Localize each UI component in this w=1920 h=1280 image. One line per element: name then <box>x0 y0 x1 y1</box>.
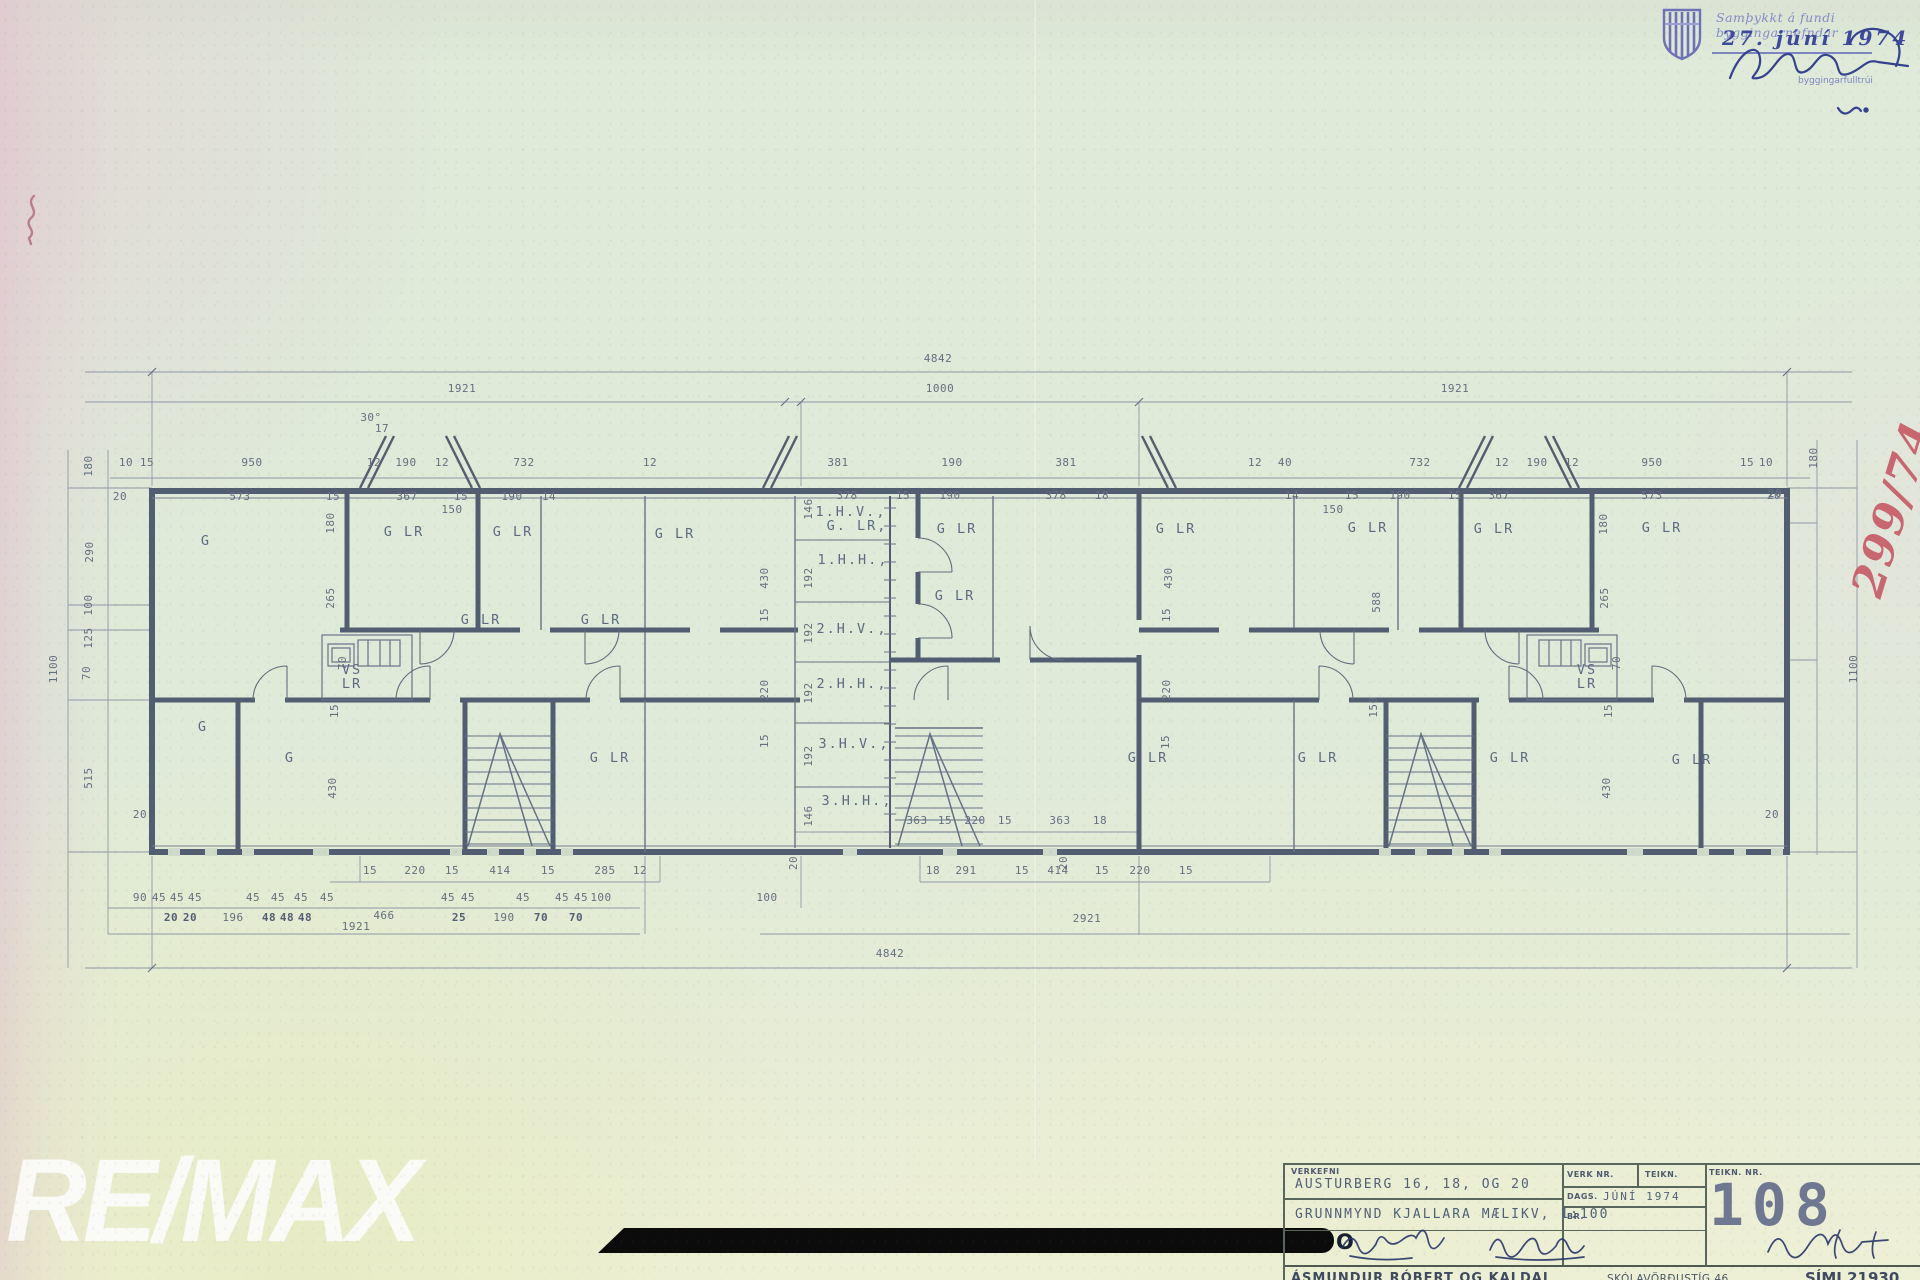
laundry-closets <box>322 635 1617 700</box>
teikn-label: TEIKN. <box>1645 1170 1678 1179</box>
dim-label: 381 <box>1055 456 1076 469</box>
dim-label: 40 <box>1278 456 1292 469</box>
dim-label: 20 <box>164 911 178 924</box>
room-label: G LR <box>1474 521 1515 537</box>
room-label: G LR <box>581 612 622 628</box>
dim-label: 70 <box>80 666 93 680</box>
dim-label: 573 <box>229 490 250 503</box>
dim-label: 10 <box>1759 456 1773 469</box>
dim-label: 190 <box>395 456 416 469</box>
dim-label: 363 <box>906 814 927 827</box>
room-label: G LR <box>937 521 978 537</box>
dim-label: 146 <box>802 498 815 519</box>
flue-marks <box>360 436 1579 488</box>
dim-label: 1921 <box>448 382 477 395</box>
verkefni-label: VERKEFNI <box>1291 1167 1340 1176</box>
dim-label: 15 <box>326 490 340 503</box>
dim-label: 15 <box>363 864 377 877</box>
dim-label: 70 <box>534 911 548 924</box>
dim-label: 367 <box>1488 489 1509 502</box>
dim-label: 192 <box>802 622 815 643</box>
dim-label: 180 <box>324 512 337 533</box>
room-label: G LR <box>384 524 425 540</box>
dim-label: 45 <box>294 891 308 904</box>
dim-label: 15 <box>758 734 771 748</box>
dim-label: 10 <box>119 456 133 469</box>
room-label: G LR <box>935 588 976 604</box>
dim-label: 45 <box>461 891 475 904</box>
dim-label: 100 <box>82 594 95 615</box>
dim-label: 265 <box>1598 587 1611 608</box>
dim-label: 15 <box>328 704 341 718</box>
dim-label: 430 <box>1162 567 1175 588</box>
dim-label: 15 <box>1345 489 1359 502</box>
dim-label: 220 <box>1129 864 1150 877</box>
dim-label: 1100 <box>47 655 60 684</box>
dim-label: 588 <box>1370 591 1383 612</box>
dim-label: 90 <box>133 891 147 904</box>
dim-label: 291 <box>955 864 976 877</box>
dim-label: 190 <box>493 911 514 924</box>
dim-label: 20 <box>183 911 197 924</box>
dimension-texts: 4842192110001921101595012190127321238119… <box>47 352 1860 960</box>
dim-label: 20 <box>133 808 147 821</box>
dim-label: 45 <box>320 891 334 904</box>
dim-label: 1921 <box>342 920 371 933</box>
stair-left <box>465 734 553 846</box>
dim-label: 192 <box>802 567 815 588</box>
dim-label: 180 <box>1597 513 1610 534</box>
stamp-official-title: byggingarfulltrúi <box>1798 76 1873 86</box>
dim-label: 414 <box>489 864 510 877</box>
room-label: 2.H.H., <box>817 676 888 692</box>
dim-label: 45 <box>441 891 455 904</box>
dim-label: 378 <box>836 489 857 502</box>
dim-label: 1921 <box>1441 382 1470 395</box>
dim-label: 220 <box>1160 679 1173 700</box>
dim-label: 12 <box>1495 456 1509 469</box>
dim-label: 150 <box>441 503 462 516</box>
dim-label: 732 <box>513 456 534 469</box>
dim-label: 2921 <box>1073 912 1102 925</box>
dim-label: 45 <box>555 891 569 904</box>
dim-label: 45 <box>188 891 202 904</box>
dim-label: 15 <box>1095 864 1109 877</box>
dim-label: 190 <box>501 490 522 503</box>
dim-label: 48 <box>262 911 276 924</box>
dim-label: 15 <box>1179 864 1193 877</box>
verk-nr-label: VERK NR. <box>1567 1170 1614 1179</box>
handwritten-signatures <box>1280 1222 1920 1266</box>
dim-label: 573 <box>1641 489 1662 502</box>
room-label: 2.H.V., <box>817 621 888 637</box>
room-label: 3.H.H., <box>822 793 893 809</box>
dim-label: 1100 <box>1847 655 1860 684</box>
dim-label: 70 <box>569 911 583 924</box>
dim-label: 45 <box>246 891 260 904</box>
approval-stamp: Samþykkt á fundi byggingarnefndar 27. jú… <box>1640 2 1920 142</box>
room-label: G <box>285 750 295 766</box>
dim-label: 15 <box>1159 735 1172 749</box>
dim-label: 220 <box>404 864 425 877</box>
dim-label: 290 <box>83 541 96 562</box>
room-label: G LR <box>1642 520 1683 536</box>
dim-label: 48 <box>280 911 294 924</box>
dim-label: 100 <box>756 891 777 904</box>
dim-label: 45 <box>152 891 166 904</box>
dim-label: 367 <box>396 490 417 503</box>
dim-label: 12 <box>367 456 381 469</box>
room-label: G LR <box>1348 520 1389 536</box>
dim-label: 265 <box>324 587 337 608</box>
dim-label: 100 <box>590 891 611 904</box>
title-block-rule <box>1285 1198 1562 1200</box>
dim-label: 15 <box>1015 864 1029 877</box>
dags-value: JÚNÍ 1974 <box>1603 1190 1681 1203</box>
dim-label: 190 <box>1389 489 1410 502</box>
firm-row: ÁSMUNDUR RÓBERT OG KALDAL SKÓLAVÖRÐUSTÍG… <box>1285 1265 1920 1280</box>
dim-label: 146 <box>802 805 815 826</box>
room-label: LR <box>342 676 362 692</box>
dim-label: 363 <box>1049 814 1070 827</box>
dim-label: 15 <box>445 864 459 877</box>
dim-label: 12 <box>1565 456 1579 469</box>
dim-label: 15 <box>896 489 910 502</box>
room-label: G LR <box>493 524 534 540</box>
stair-center <box>895 734 983 846</box>
dim-label: 190 <box>941 456 962 469</box>
dim-label: 732 <box>1409 456 1430 469</box>
dim-label: 18 <box>1093 814 1107 827</box>
dim-label: 220 <box>964 814 985 827</box>
room-label: G LR <box>1298 750 1339 766</box>
firm-address: SKÓLAVÖRÐUSTÍG 46 <box>1607 1273 1729 1280</box>
dim-label: 20 <box>113 490 127 503</box>
dim-label: 4842 <box>876 947 905 960</box>
dim-label: 950 <box>241 456 262 469</box>
br-label: BR. <box>1567 1212 1584 1221</box>
dim-label: 18 <box>926 864 940 877</box>
dim-label: 192 <box>802 745 815 766</box>
dim-label: 15 <box>758 608 771 622</box>
dim-label: 430 <box>758 567 771 588</box>
dim-label: 12 <box>1248 456 1262 469</box>
dim-label: 15 <box>1740 456 1754 469</box>
dim-label: 45 <box>516 891 530 904</box>
dags-label: DAGS. <box>1567 1192 1598 1201</box>
dim-label: 12 <box>435 456 449 469</box>
room-label: G LR <box>655 526 696 542</box>
dim-label: 414 <box>1047 864 1068 877</box>
dim-label: 14 <box>542 490 556 503</box>
dim-label: 180 <box>1807 447 1820 468</box>
room-label: G LR <box>1490 750 1531 766</box>
room-label: G LR <box>590 750 631 766</box>
room-label: G LR <box>1672 752 1713 768</box>
dim-label: 285 <box>594 864 615 877</box>
dim-label: 15 <box>541 864 555 877</box>
room-label: G LR <box>461 612 502 628</box>
dim-label: 515 <box>82 767 95 788</box>
dim-label: 430 <box>1600 777 1613 798</box>
title-block-rule <box>1562 1186 1705 1188</box>
dim-label: 381 <box>827 456 848 469</box>
firm-phone: SÍMI 21930 <box>1805 1269 1899 1280</box>
room-label: G LR <box>1156 521 1197 537</box>
remax-watermark: RE/MAX <box>6 1133 418 1268</box>
dim-label: 220 <box>758 679 771 700</box>
room-label: G <box>198 719 208 735</box>
dim-label: 20 <box>787 856 800 870</box>
dim-label: 150 <box>1367 696 1380 717</box>
reykjavik-coat-of-arms-icon <box>1662 8 1702 62</box>
dim-label: 125 <box>82 627 95 648</box>
dim-label: 15 <box>1160 608 1173 622</box>
dim-label: 15 <box>140 456 154 469</box>
stamp-signature <box>1700 16 1920 126</box>
dim-label: 48 <box>298 911 312 924</box>
scanned-blueprint-sheet: 4842192110001921101595012190127321238119… <box>0 0 1920 1280</box>
title-block-divider <box>1637 1165 1639 1186</box>
dim-label: 150 <box>1322 503 1343 516</box>
dim-label: 378 <box>1045 489 1066 502</box>
dim-label: 15 <box>938 814 952 827</box>
dim-label: 17 <box>375 422 389 435</box>
room-label: G <box>201 533 211 549</box>
dim-label: 196 <box>222 911 243 924</box>
dim-label: 190 <box>1526 456 1547 469</box>
dim-label: 15 <box>998 814 1012 827</box>
room-labels: GG LRG LRG LRG LRG LRVSLRGGG LR1.H.V.,G.… <box>198 504 1712 809</box>
floor-plan-drawing: 4842192110001921101595012190127321238119… <box>0 0 1920 1280</box>
dim-label: 45 <box>271 891 285 904</box>
dim-label: 180 <box>82 455 95 476</box>
room-label: G. LR, <box>827 518 888 534</box>
dim-label: 18 <box>1095 489 1109 502</box>
drawing-title: GRUNNMYND KJALLARA MÆLIKV, 1:100 <box>1295 1207 1609 1222</box>
dim-label: 15 <box>454 490 468 503</box>
project-name: AUSTURBERG 16, 18, OG 20 <box>1295 1177 1531 1192</box>
dim-label: 192 <box>802 682 815 703</box>
dim-label: 15 <box>1448 489 1462 502</box>
walls <box>152 488 1787 855</box>
redaction-bar <box>598 1228 1334 1253</box>
dim-label: 15 <box>1602 704 1615 718</box>
dim-label: 45 <box>574 891 588 904</box>
dim-label: 20 <box>1768 487 1782 500</box>
dim-label: 12 <box>643 456 657 469</box>
room-label: LR <box>1577 676 1597 692</box>
stair-right <box>1386 734 1474 846</box>
room-label: 3.H.V., <box>819 736 890 752</box>
dim-label: 20 <box>1765 808 1779 821</box>
dim-label: 14 <box>1285 489 1299 502</box>
room-label: G LR <box>1128 750 1169 766</box>
dim-label: 466 <box>373 909 394 922</box>
dim-label: 4842 <box>924 352 953 365</box>
dim-label: 950 <box>1641 456 1662 469</box>
dim-label: 25 <box>452 911 466 924</box>
dim-label: 70 <box>1610 656 1623 670</box>
dim-label: 45 <box>170 891 184 904</box>
dim-label: 190 <box>939 489 960 502</box>
dim-label: 12 <box>633 864 647 877</box>
dim-label: 1000 <box>926 382 955 395</box>
dim-label: 430 <box>326 777 339 798</box>
room-label: 1.H.H., <box>818 552 889 568</box>
firm-name: ÁSMUNDUR RÓBERT OG KALDAL <box>1291 1271 1552 1280</box>
